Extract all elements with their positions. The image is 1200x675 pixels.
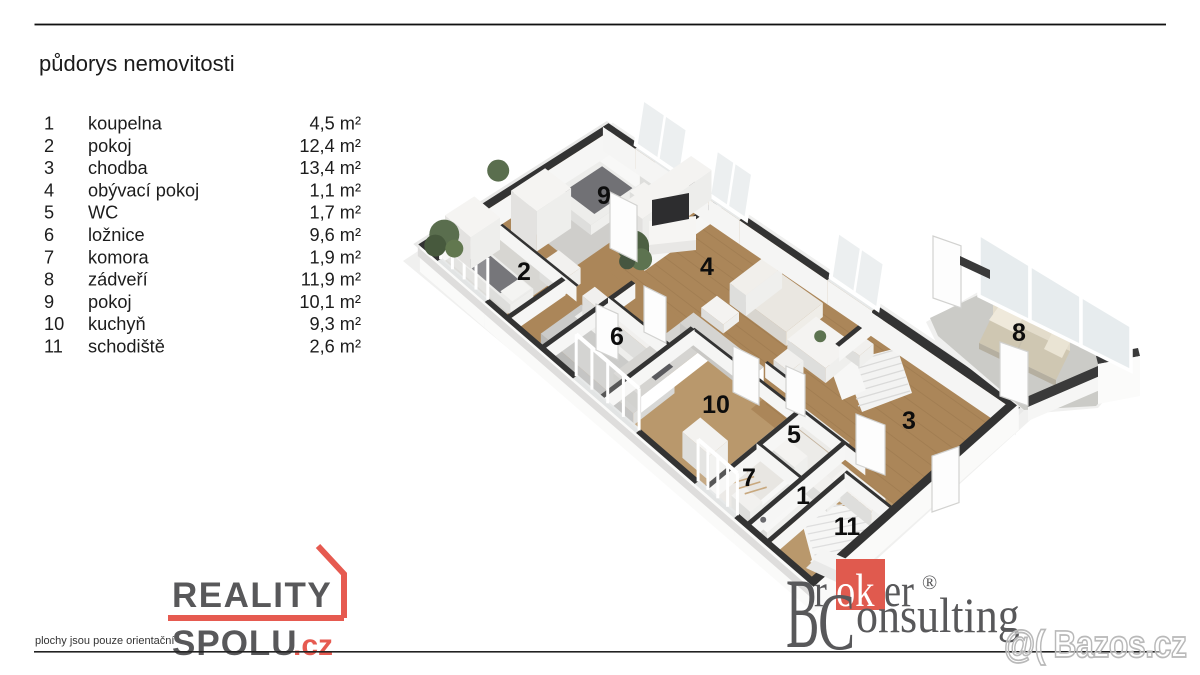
svg-text:obývací pokoj: obývací pokoj xyxy=(88,180,199,200)
svg-text:11: 11 xyxy=(44,337,63,357)
svg-text:10: 10 xyxy=(702,391,730,419)
svg-text:plochy jsou pouze orientační: plochy jsou pouze orientační xyxy=(35,635,174,647)
svg-text:2: 2 xyxy=(517,258,531,286)
svg-text:7: 7 xyxy=(742,464,756,492)
svg-text:4: 4 xyxy=(700,253,714,281)
svg-text:2: 2 xyxy=(44,136,54,156)
svg-text:SPOLU: SPOLU xyxy=(172,624,298,663)
svg-text:onsulting: onsulting xyxy=(856,588,1020,643)
svg-text:9,6 m²: 9,6 m² xyxy=(309,225,361,245)
svg-text:2,6 m²: 2,6 m² xyxy=(309,337,361,357)
svg-text:9: 9 xyxy=(597,182,611,210)
svg-text:pokoj: pokoj xyxy=(88,136,131,156)
svg-text:11: 11 xyxy=(834,513,861,541)
svg-text:5: 5 xyxy=(787,421,801,449)
svg-text:C: C xyxy=(818,578,855,668)
svg-text:schodiště: schodiště xyxy=(88,337,165,357)
svg-text:1,9 m²: 1,9 m² xyxy=(309,247,361,267)
svg-text:.cz: .cz xyxy=(293,629,333,662)
svg-text:1: 1 xyxy=(44,114,54,134)
svg-text:komora: komora xyxy=(88,247,150,267)
svg-text:11,9 m²: 11,9 m² xyxy=(301,270,361,290)
svg-text:zádveří: zádveří xyxy=(88,270,148,290)
svg-text:6: 6 xyxy=(44,225,54,245)
svg-text:6: 6 xyxy=(610,323,624,351)
svg-text:ložnice: ložnice xyxy=(88,225,145,245)
svg-text:1: 1 xyxy=(796,482,810,510)
svg-text:1,7 m²: 1,7 m² xyxy=(309,203,361,223)
svg-text:9,3 m²: 9,3 m² xyxy=(309,314,361,334)
svg-text:1,1 m²: 1,1 m² xyxy=(309,180,361,200)
svg-text:10,1 m²: 10,1 m² xyxy=(299,292,361,312)
svg-text:půdorys nemovitosti: půdorys nemovitosti xyxy=(39,51,235,76)
svg-text:7: 7 xyxy=(44,247,54,267)
svg-text:5: 5 xyxy=(44,203,54,223)
svg-text:4: 4 xyxy=(44,180,54,200)
svg-text:koupelna: koupelna xyxy=(88,114,163,134)
svg-text:WC: WC xyxy=(88,203,118,223)
svg-text:@( Bazos.cz: @( Bazos.cz xyxy=(1004,623,1187,665)
svg-text:chodba: chodba xyxy=(88,158,149,178)
svg-text:4,5 m²: 4,5 m² xyxy=(309,114,361,134)
svg-text:3: 3 xyxy=(44,158,54,178)
svg-text:12,4 m²: 12,4 m² xyxy=(299,136,361,156)
svg-text:kuchyň: kuchyň xyxy=(88,314,146,334)
svg-text:13,4 m²: 13,4 m² xyxy=(299,158,361,178)
svg-text:8: 8 xyxy=(1012,319,1026,347)
svg-text:9: 9 xyxy=(44,292,54,312)
svg-text:REALITY: REALITY xyxy=(172,576,332,615)
svg-text:3: 3 xyxy=(902,407,916,435)
svg-text:10: 10 xyxy=(44,314,64,334)
svg-text:pokoj: pokoj xyxy=(88,292,131,312)
svg-text:8: 8 xyxy=(44,270,54,290)
